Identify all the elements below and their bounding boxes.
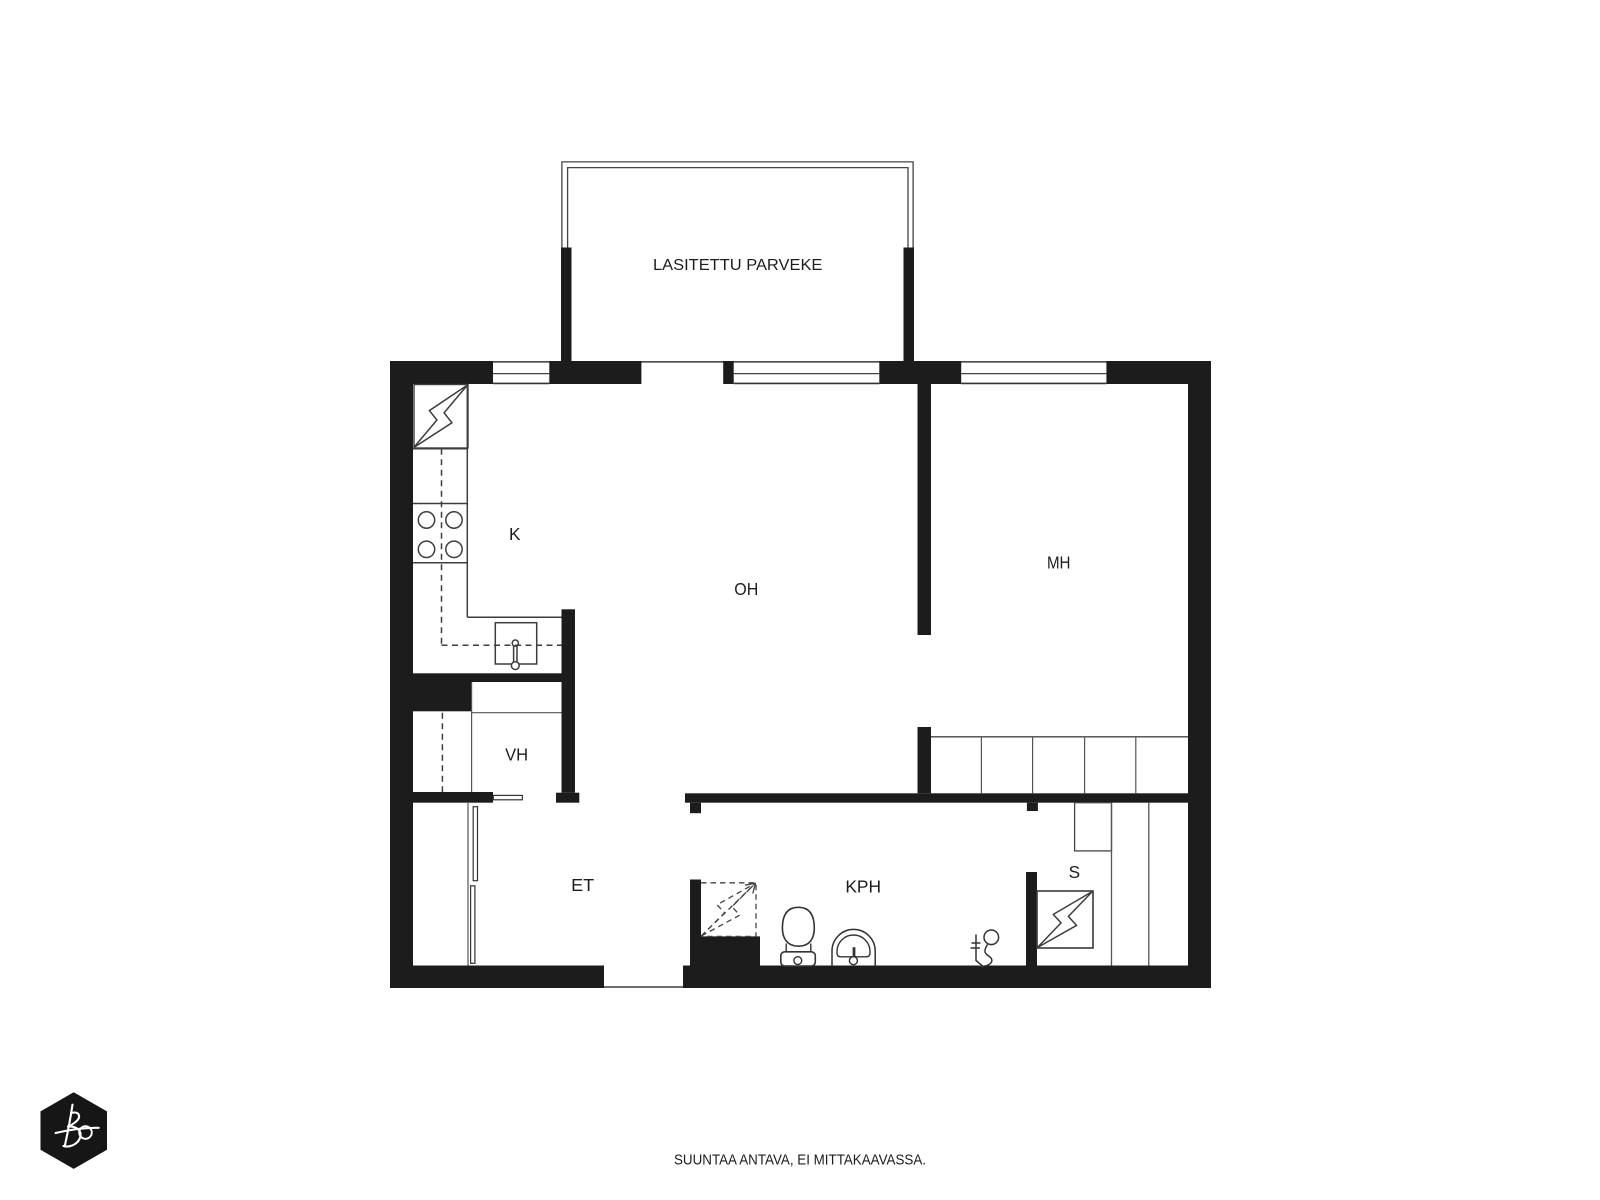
svg-text:K: K [509, 524, 521, 544]
svg-text:MH: MH [1047, 552, 1071, 572]
svg-text:ET: ET [571, 875, 595, 895]
svg-text:VH: VH [505, 745, 528, 765]
svg-text:KPH: KPH [845, 877, 881, 897]
svg-text:SUUNTAA ANTAVA, EI MITTAKAAVAS: SUUNTAA ANTAVA, EI MITTAKAAVASSA. [674, 1151, 926, 1168]
svg-text:S: S [1069, 862, 1080, 882]
svg-text:LASITETTU PARVEKE: LASITETTU PARVEKE [653, 257, 822, 274]
svg-text:OH: OH [734, 579, 758, 599]
